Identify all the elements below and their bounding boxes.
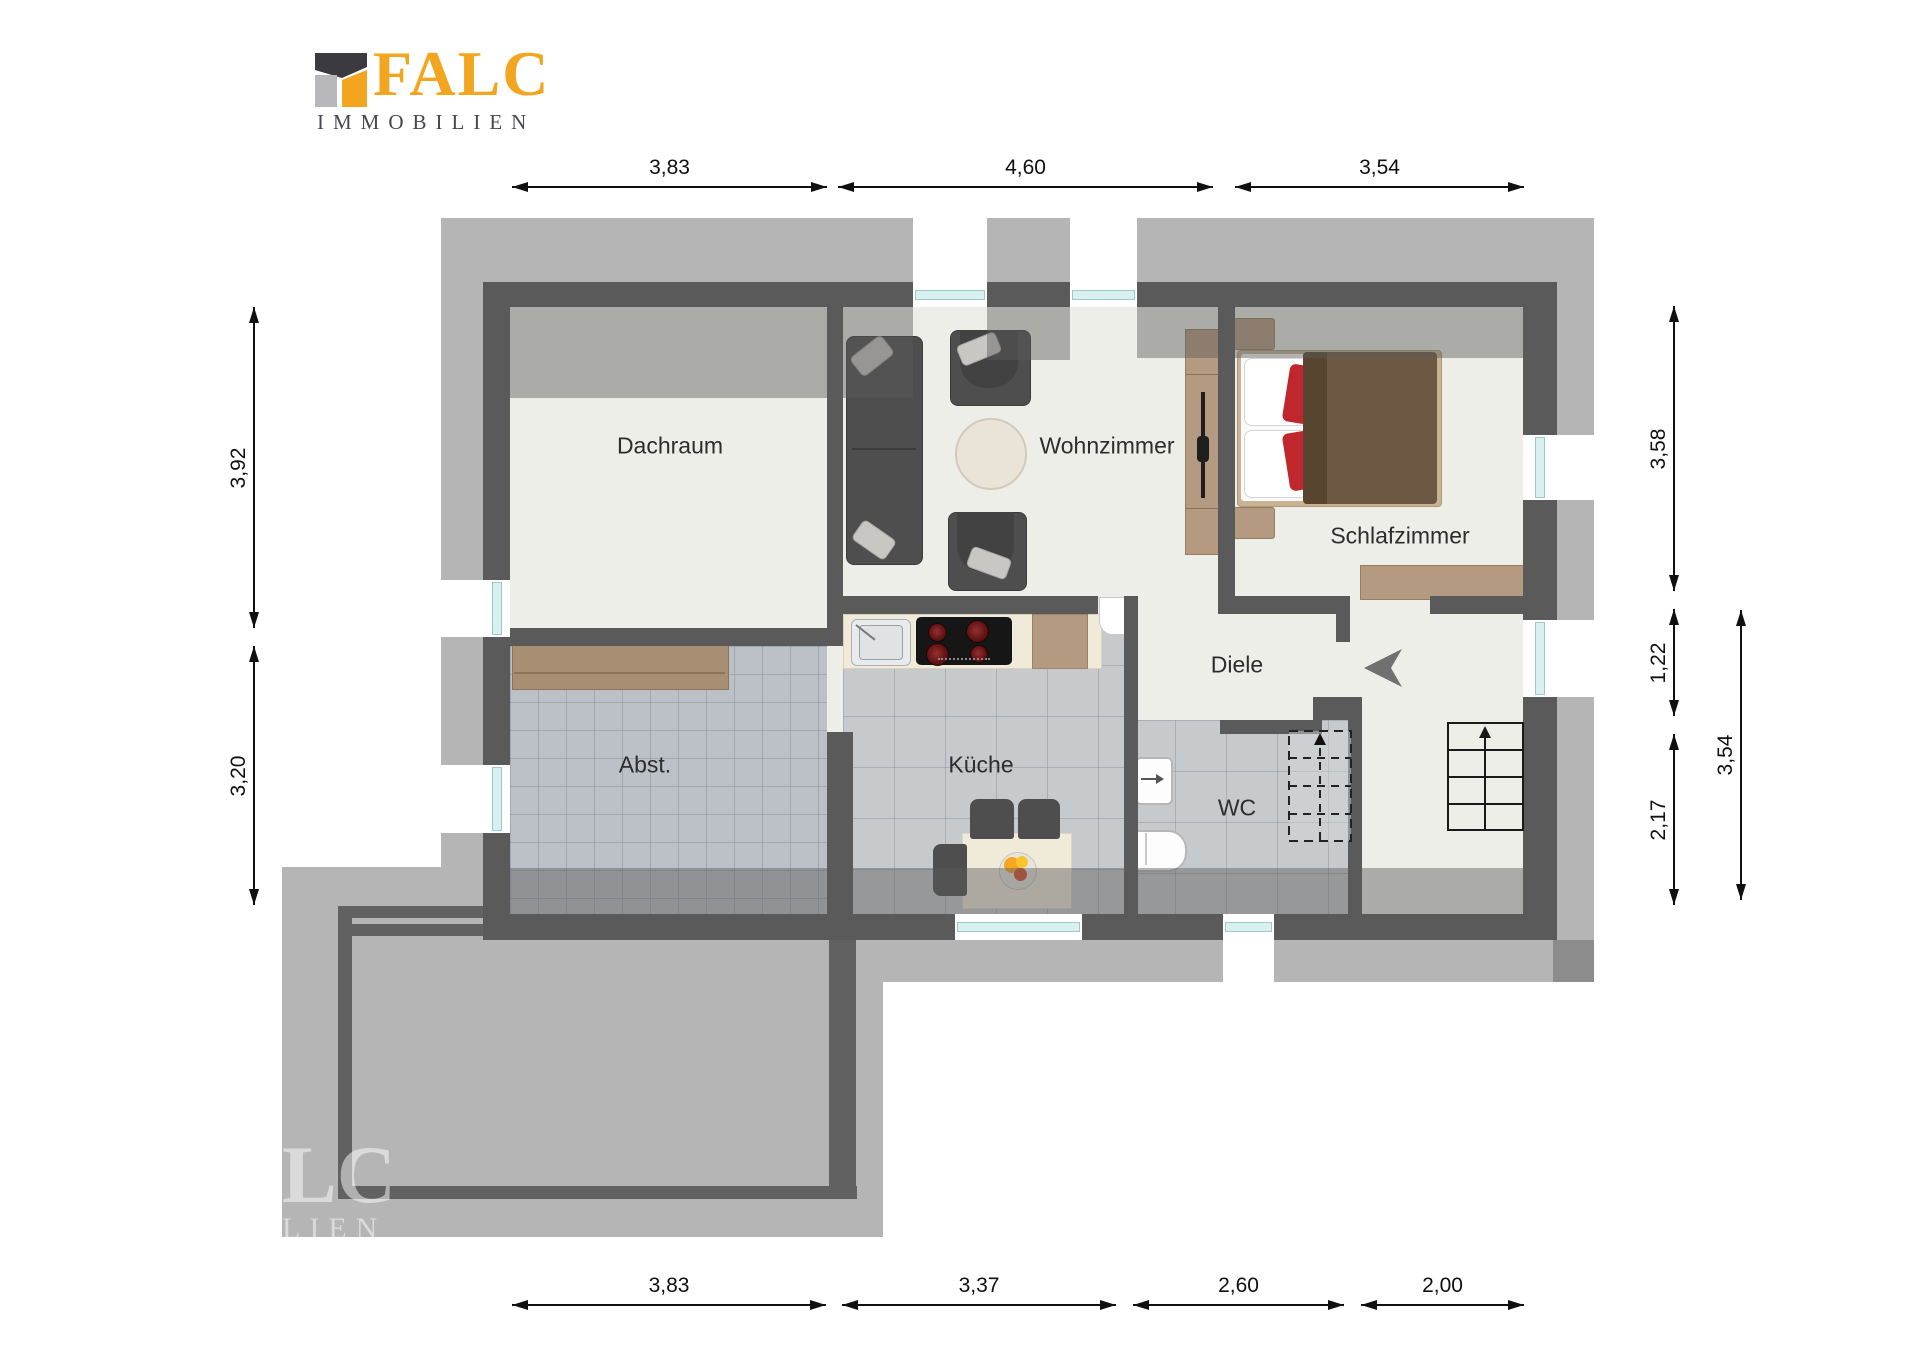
roof-shade-wohnzimmer [987, 282, 1070, 360]
dim-left-2-label: 3,20 [227, 755, 251, 796]
roof-band-top-3 [1137, 218, 1594, 282]
burner-1 [928, 623, 947, 642]
coffee-table [955, 418, 1027, 490]
roof-band-left-3 [441, 833, 483, 867]
roof-band-left-1 [441, 398, 483, 580]
window-bottom-wc [1223, 914, 1274, 940]
dim-top-2: 4,60 [838, 186, 1213, 188]
annex-wall-top-inner [352, 924, 483, 936]
room-label-dachraum: Dachraum [617, 433, 723, 460]
falc-logo-icon [315, 53, 367, 107]
wall-schlafzimmer-diele-right [1430, 596, 1523, 614]
brand-name: FALC [373, 42, 550, 106]
wardrobe-seam-top [1186, 374, 1222, 375]
dim-bottom-4-label: 2,00 [1422, 1274, 1463, 1298]
dim-top-1: 3,83 [512, 186, 827, 188]
roof-shade-dachraum [441, 282, 913, 398]
dim-right-inner-1-label: 3,58 [1647, 428, 1671, 469]
wall-wohnzimmer-kueche [843, 596, 1098, 614]
wardrobe-handle [1197, 436, 1209, 462]
dim-top-2-label: 4,60 [1005, 156, 1046, 180]
room-label-wohnzimmer: Wohnzimmer [1039, 433, 1174, 460]
dim-left-1-label: 3,92 [227, 447, 251, 488]
watermark-line2: LIEN [282, 1212, 483, 1237]
watermark: LC LIEN [282, 1138, 483, 1237]
wc-sink-tap [1141, 778, 1157, 780]
dim-right-inner-2-label: 1,22 [1647, 642, 1671, 683]
attic-ladder [1288, 730, 1352, 847]
room-label-schlafzimmer: Schlafzimmer [1330, 523, 1469, 550]
dim-bottom-3: 2,60 [1133, 1304, 1344, 1306]
wardrobe-seam-bottom [1186, 508, 1222, 509]
wall-outer-right [1523, 282, 1557, 940]
wc-sink-tap-arrow [1156, 774, 1164, 784]
window-right-schlafzimmer [1523, 435, 1557, 500]
cooktop-controls [938, 658, 990, 660]
dining-chair-2 [1018, 799, 1060, 839]
roof-band-top-2 [987, 218, 1070, 282]
sofa-seam [852, 448, 916, 450]
dim-top-3-label: 3,54 [1359, 156, 1400, 180]
dim-right-inner-1: 3,58 [1673, 306, 1675, 591]
falc-logo [315, 53, 367, 112]
room-label-diele: Diele [1211, 652, 1263, 679]
storage-sideboard-edge [514, 672, 725, 674]
dim-left-2: 3,20 [253, 646, 255, 905]
burner-4 [970, 645, 988, 663]
roof-band-bottom-2 [1274, 940, 1594, 982]
dim-bottom-3-label: 2,60 [1218, 1274, 1259, 1298]
dim-right-inner-2: 1,22 [1673, 609, 1675, 716]
wall-dachraum-abst [510, 628, 843, 646]
window-right-diele [1523, 620, 1557, 697]
burner-3 [926, 643, 949, 666]
roof-band-left-2 [441, 637, 483, 765]
wall-schlafzimmer-diele-left [1218, 596, 1350, 614]
kitchen-counter-wood [1032, 614, 1088, 669]
roof-shade-schlafzimmer [1137, 282, 1594, 358]
dim-left-1: 3,92 [253, 307, 255, 628]
wall-stub-diele [1336, 614, 1350, 642]
dim-bottom-2-label: 3,37 [959, 1274, 1000, 1298]
annex-wall-top-outer [338, 906, 483, 918]
room-label-wc: WC [1218, 795, 1256, 822]
storage-sideboard [512, 645, 729, 690]
wc-sink [1135, 757, 1173, 805]
north-arrow-icon [1360, 645, 1406, 696]
staircase [1447, 722, 1524, 836]
annex-wall-right [829, 940, 856, 1199]
dim-top-3: 3,54 [1235, 186, 1524, 188]
nightstand-bottom [1233, 507, 1275, 539]
dim-bottom-1-label: 3,83 [649, 1274, 690, 1298]
wall-stairwell-top [1313, 697, 1362, 720]
window-left-dachraum [483, 580, 510, 637]
bed-duvet-fold [1303, 352, 1327, 504]
dining-chair-1 [970, 799, 1014, 839]
roof-band-right-1 [1553, 358, 1594, 435]
window-top-living-2 [1070, 282, 1137, 307]
burner-2 [966, 620, 989, 643]
toilet-tank-line [1145, 833, 1147, 865]
dim-bottom-4: 2,00 [1361, 1304, 1524, 1306]
dim-right-outer-1: 3,54 [1740, 610, 1742, 900]
wall-kueche-wc [1124, 596, 1138, 914]
dim-right-inner-3-label: 2,17 [1647, 799, 1671, 840]
brand-subtitle: IMMOBILIEN [317, 110, 535, 135]
roof-band-top-1 [441, 218, 913, 282]
dim-top-1-label: 3,83 [649, 156, 690, 180]
floor-plan-page: FALC IMMOBILIEN [0, 0, 1920, 1357]
watermark-line1: LC [282, 1138, 483, 1212]
window-left-abst [483, 765, 510, 833]
kitchen-door-leaf [1099, 597, 1125, 635]
room-label-kueche: Küche [948, 752, 1013, 779]
roof-shade-interior-bottom [510, 868, 1523, 914]
room-label-abst: Abst. [619, 752, 671, 779]
toilet [1133, 830, 1187, 872]
window-bottom-kitchen [955, 914, 1082, 940]
dim-right-inner-3: 2,17 [1673, 734, 1675, 905]
dim-bottom-2: 3,37 [842, 1304, 1116, 1306]
window-top-living-1 [913, 282, 987, 307]
roof-band-right-2 [1553, 500, 1594, 620]
bedroom-sideboard [1360, 565, 1530, 600]
fruit-yellow [1016, 856, 1028, 868]
dim-bottom-1: 3,83 [512, 1304, 826, 1306]
dim-right-outer-1-label: 3,54 [1714, 735, 1738, 776]
